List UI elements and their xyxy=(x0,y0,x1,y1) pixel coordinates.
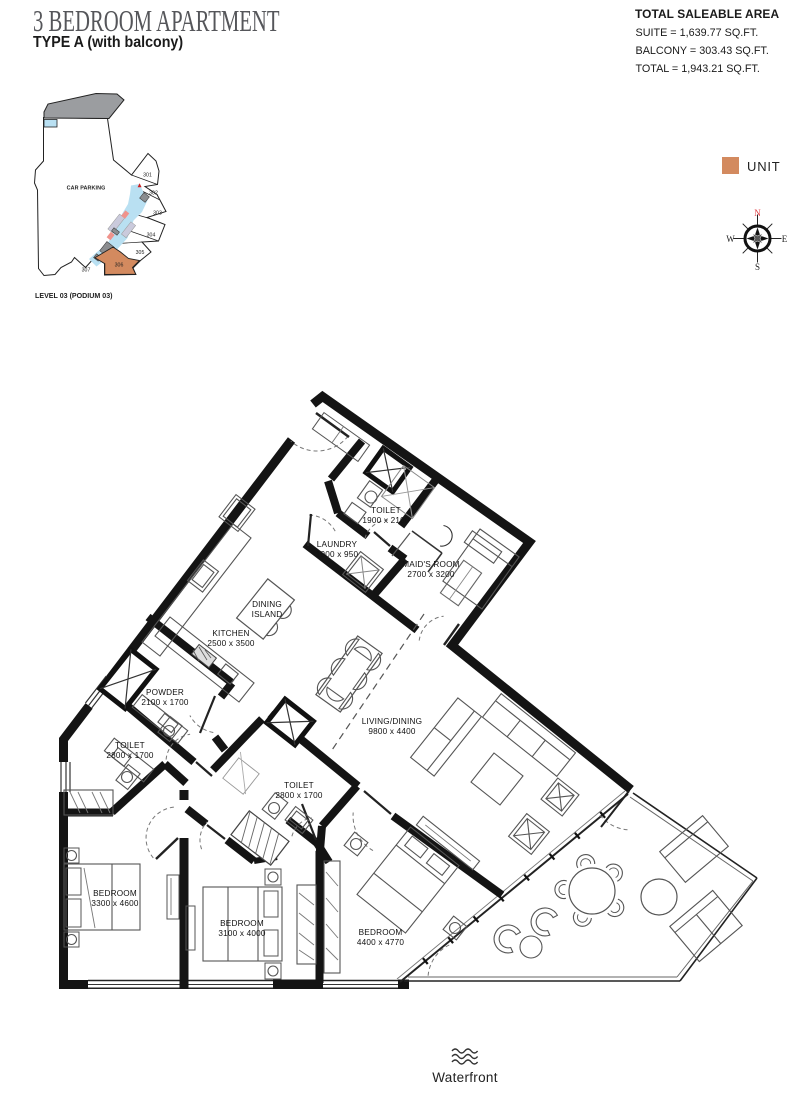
svg-text:304: 304 xyxy=(147,233,156,239)
svg-text:2800 x 1700: 2800 x 1700 xyxy=(106,751,154,760)
svg-text:LEVEL 03 (PODIUM 03): LEVEL 03 (PODIUM 03) xyxy=(35,292,113,300)
svg-text:9800 x 4400: 9800 x 4400 xyxy=(368,727,416,736)
svg-text:TOILET: TOILET xyxy=(284,781,314,790)
svg-text:302: 302 xyxy=(149,191,158,197)
svg-text:LIVING/DINING: LIVING/DINING xyxy=(362,717,422,726)
svg-text:301: 301 xyxy=(143,173,152,179)
svg-text:DINING: DINING xyxy=(252,600,282,609)
svg-text:3100 x 4000: 3100 x 4000 xyxy=(218,929,266,938)
svg-text:POWDER: POWDER xyxy=(146,688,184,697)
svg-text:LAUNDRY: LAUNDRY xyxy=(317,540,358,549)
svg-text:2700 x 3200: 2700 x 3200 xyxy=(407,570,455,579)
svg-text:3300 x 4600: 3300 x 4600 xyxy=(91,899,139,908)
svg-text:307: 307 xyxy=(82,268,91,274)
svg-text:BEDROOM: BEDROOM xyxy=(93,889,137,898)
svg-text:BEDROOM: BEDROOM xyxy=(359,928,403,937)
svg-text:2800 x 1700: 2800 x 1700 xyxy=(275,791,323,800)
svg-text:2500 x 3500: 2500 x 3500 xyxy=(207,639,255,648)
svg-text:4400 x 4770: 4400 x 4770 xyxy=(357,938,405,947)
svg-text:306: 306 xyxy=(115,263,124,269)
svg-text:1900 x 950: 1900 x 950 xyxy=(316,550,359,559)
svg-text:Waterfront: Waterfront xyxy=(432,1070,498,1085)
svg-text:TOILET: TOILET xyxy=(371,506,401,515)
svg-text:ISLAND: ISLAND xyxy=(252,610,283,619)
svg-text:S: S xyxy=(755,262,760,272)
svg-text:N: N xyxy=(754,208,761,218)
svg-text:E: E xyxy=(782,234,788,244)
svg-text:W: W xyxy=(726,234,735,244)
svg-text:CAR PARKING: CAR PARKING xyxy=(67,186,106,192)
svg-text:MAID'S ROOM: MAID'S ROOM xyxy=(402,560,459,569)
svg-text:2100 x 1700: 2100 x 1700 xyxy=(141,698,189,707)
svg-text:1900 x 2100: 1900 x 2100 xyxy=(362,516,410,525)
svg-text:KITCHEN: KITCHEN xyxy=(212,629,249,638)
svg-text:303: 303 xyxy=(153,211,162,217)
svg-text:TOILET: TOILET xyxy=(115,741,145,750)
svg-text:305: 305 xyxy=(136,250,145,256)
svg-text:BEDROOM: BEDROOM xyxy=(220,919,264,928)
